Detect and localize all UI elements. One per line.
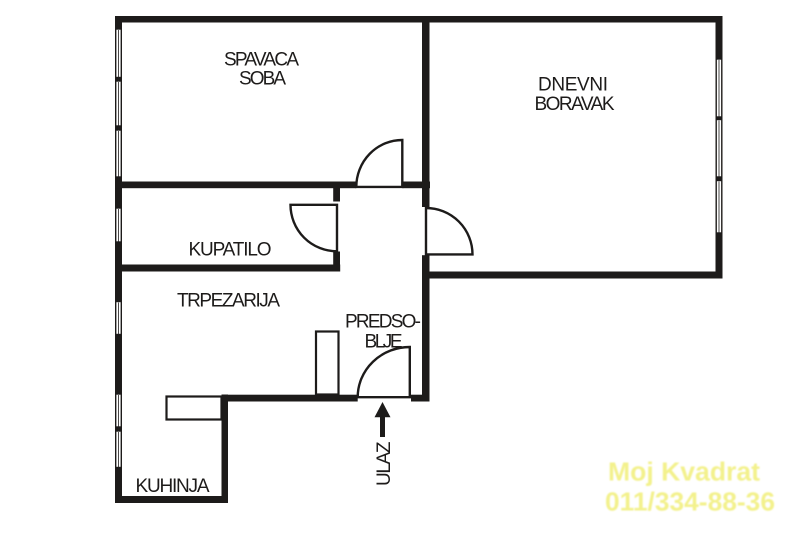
svg-text:SOBA: SOBA <box>239 69 286 90</box>
svg-text:TRPEZARIJA: TRPEZARIJA <box>177 291 280 312</box>
svg-text:KUPATILO: KUPATILO <box>189 240 272 261</box>
svg-text:BLJE: BLJE <box>365 332 403 353</box>
svg-text:DNEVNI: DNEVNI <box>538 75 608 96</box>
svg-text:Moj Kvadrat: Moj Kvadrat <box>608 459 761 487</box>
svg-text:011/334-88-36: 011/334-88-36 <box>605 487 775 517</box>
svg-text:PREDSO-: PREDSO- <box>345 312 421 333</box>
svg-text:KUHINJA: KUHINJA <box>136 476 210 497</box>
svg-text:SPAVACA: SPAVACA <box>224 50 299 71</box>
svg-text:ULAZ: ULAZ <box>374 441 395 486</box>
svg-text:BORAVAK: BORAVAK <box>535 94 615 115</box>
